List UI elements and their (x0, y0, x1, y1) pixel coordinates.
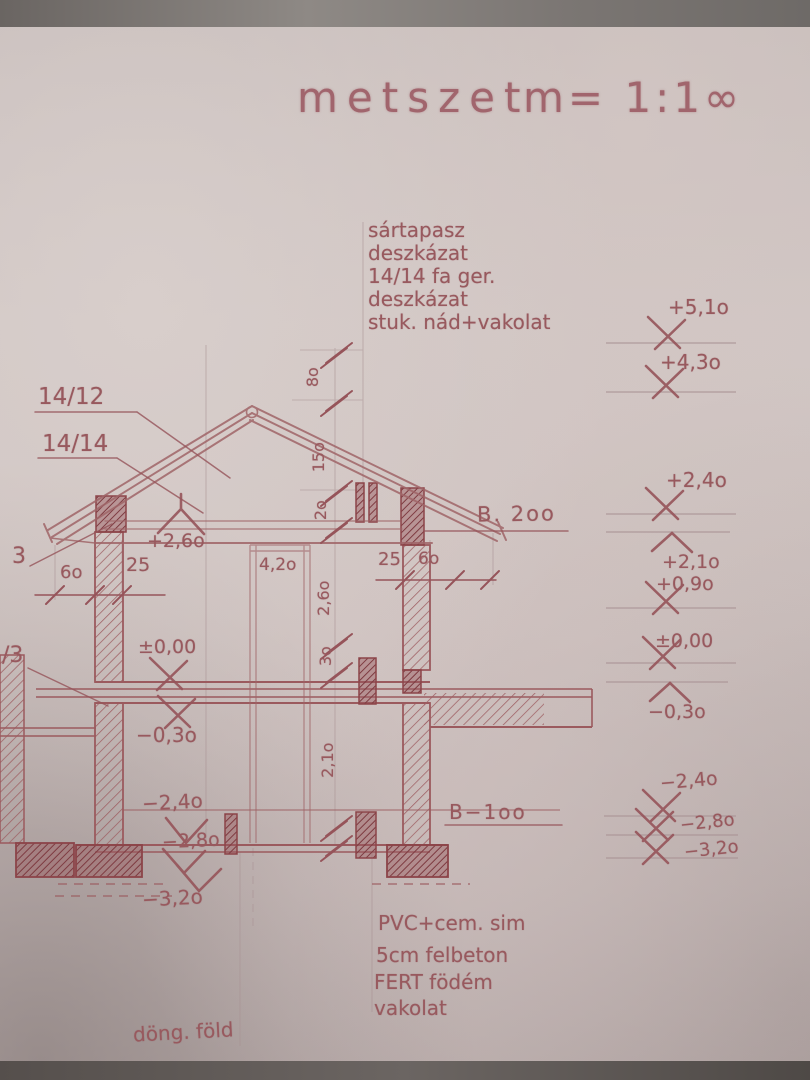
hdim-right-wall: 25 (378, 550, 401, 571)
vdim: 2o (312, 478, 330, 542)
drawing-scale: m= 1:1∞ (523, 74, 743, 122)
level-mark: +2,4o (666, 469, 727, 492)
level-mark: −0,3o (136, 724, 197, 747)
drawing-title: metszet (297, 74, 529, 122)
level-mark: −3,2o (141, 885, 203, 911)
hdim-left-overhang: 6o (60, 563, 82, 584)
porch-slab (424, 689, 592, 727)
detail-ref-upper: 3 (12, 544, 26, 569)
opening-height-dim: 4,2o (259, 556, 296, 576)
beam-label-lower: B−1oo (449, 801, 527, 824)
level-mark: +0,9o (656, 574, 714, 596)
hdim-right-overhang: 6o (418, 550, 439, 570)
vdim: 2,1o (319, 728, 337, 792)
detail-ref-lower: /3 (2, 643, 23, 668)
level-mark: +2,1o (662, 552, 720, 574)
level-mark: −2,8o (161, 830, 220, 855)
rafter-size-label: 14/12 (38, 384, 104, 410)
level-mark: ±0,00 (138, 637, 196, 659)
hdim-left-wall: 25 (126, 555, 150, 577)
beam-label-upper: B. 2oo (477, 501, 556, 527)
roof-note-line: sártapasz (368, 219, 465, 242)
level-mark: −0,3o (648, 702, 706, 724)
roof-note-line: 14/14 fa ger. (368, 265, 495, 288)
floor-note-line: FERT födém (374, 971, 493, 994)
vdim: 8o (304, 345, 322, 409)
roof-note-line: stuk. nád+vakolat (368, 311, 550, 334)
roof-note-line: deszkázat (368, 288, 468, 311)
interior-opening (250, 545, 310, 843)
blueprint-photo: metszet m= 1:1∞ sártapasz deszkázat 14/1… (0, 0, 810, 1080)
level-mark: +5,1o (668, 296, 729, 319)
level-mark: +4,3o (660, 351, 721, 374)
level-mark: +2,6o (147, 531, 205, 553)
level-mark: ±0,00 (655, 631, 713, 653)
floor-note-line: PVC+cem. sim (378, 912, 525, 935)
wall-plate-size-label: 14/14 (42, 431, 108, 457)
floor-note-line: 5cm felbeton (376, 944, 508, 967)
vdim: 3o (317, 624, 335, 688)
level-mark: −2,4o (141, 789, 203, 815)
vdim: 2,6o (315, 566, 333, 630)
floor-note-line: vakolat (374, 997, 447, 1020)
roof-note-line: deszkázat (368, 242, 468, 265)
